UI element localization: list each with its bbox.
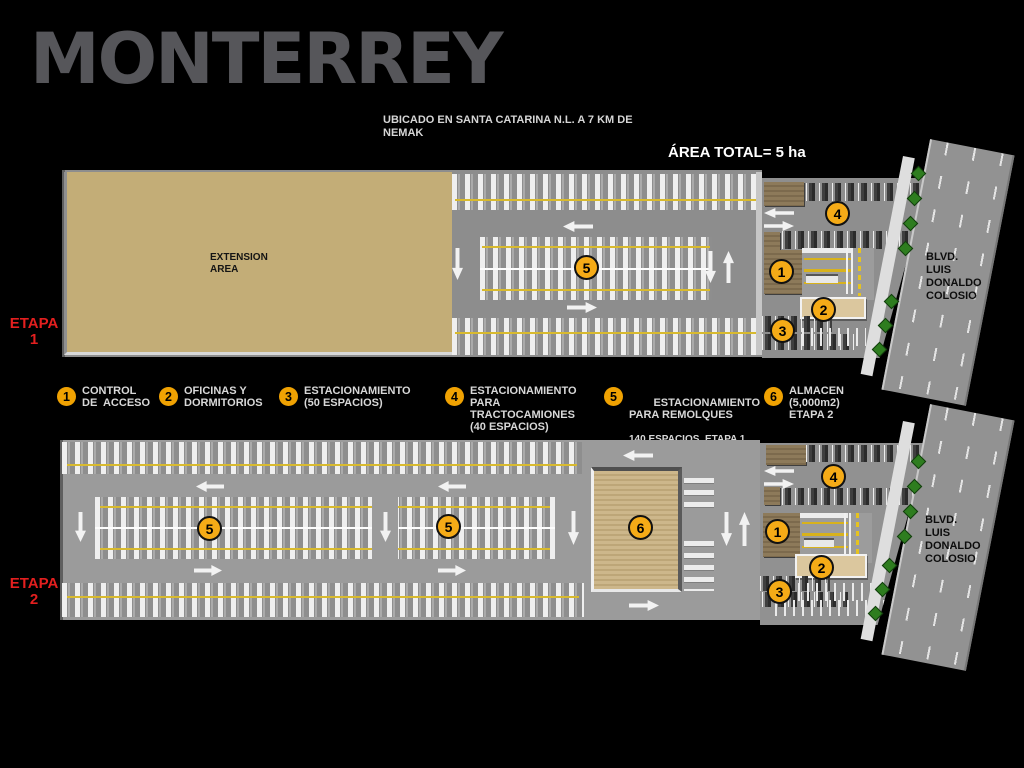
legend-marker-2: 2 [159,387,178,406]
legend-text-1: CONTROL DE ACCESO [82,385,150,409]
etapa2-stage-label: ETAPA 2 [6,576,62,608]
trailer-row [62,583,584,617]
extension-area: EXTENSION AREA [64,172,452,355]
arrow-left-icon [764,208,794,218]
shed-building [766,445,806,465]
shuttle-vehicle [804,538,834,547]
curb-strip [756,172,762,355]
marker-offices: 2 [811,297,836,322]
gate-strip [800,513,848,518]
arrow-right-icon [764,221,794,231]
legend-item-6: 6 ALMACEN (5,000m2) ETAPA 2 [764,385,844,421]
crosswalk [846,248,856,294]
marker-tractor-parking: 4 [825,201,850,226]
etapa1-stage-label: ETAPA 1 [6,316,62,348]
dock-trucks [684,478,714,510]
parking-stalls [802,328,866,346]
crosswalk [844,513,854,558]
marker-car-parking: 3 [767,579,792,604]
marker-warehouse: 6 [628,515,653,540]
legend-text-6: ALMACEN (5,000m2) ETAPA 2 [789,385,844,421]
legend-text-2: OFICINAS Y DORMITORIOS [184,385,263,409]
shed-building [764,182,804,206]
marker-trailer-parking: 5 [574,255,599,280]
entrance-driveway [802,248,874,300]
legend-marker-6: 6 [764,387,783,406]
trailer-row [452,318,760,355]
boulevard-label: BLVD. LUIS DONALDO COLOSIO [926,251,1008,303]
marker-access-control: 1 [765,519,790,544]
shed-building [764,232,780,250]
trailer-row [95,497,555,559]
legend-marker-3: 3 [279,387,298,406]
parking-stalls [798,583,872,601]
legend-marker-1: 1 [57,387,76,406]
slide-canvas: MONTERREY UBICADO EN SANTA CATARINA N.L.… [0,0,1024,768]
arrow-left-icon [764,466,794,476]
legend-item-4: 4 ESTACIONAMIENTO PARA TRACTOCAMIONES (4… [445,385,577,433]
lane-marking [802,522,848,524]
legend-marker-4: 4 [445,387,464,406]
median-dashes [856,513,859,559]
gate-strip [802,248,852,253]
legend-item-1: 1 CONTROL DE ACCESO [57,385,150,409]
shuttle-vehicle [806,274,838,283]
legend-item-3: 3 ESTACIONAMIENTO (50 ESPACIOS) [279,385,411,409]
marker-trailer-parking: 5 [197,516,222,541]
marker-offices: 2 [809,555,834,580]
location-subtitle: UBICADO EN SANTA CATARINA N.L. A 7 KM DE… [383,114,633,140]
legend-marker-5: 5 [604,387,623,406]
boulevard-label: BLVD. LUIS DONALDO COLOSIO [925,514,1007,566]
trailer-row [62,442,582,474]
marker-tractor-parking: 4 [821,464,846,489]
shed-building [764,487,780,505]
area-total-label: ÁREA TOTAL= 5 ha [668,144,806,161]
extension-area-label: EXTENSION AREA [210,252,268,276]
marker-car-parking: 3 [770,318,795,343]
marker-trailer-parking: 5 [436,514,461,539]
legend-item-2: 2 OFICINAS Y DORMITORIOS [159,385,263,409]
lane-marking [804,258,852,260]
lane-marking [804,269,852,272]
lane-marking [802,533,848,536]
dock-trucks [684,541,714,591]
legend-text-3: ESTACIONAMIENTO (50 ESPACIOS) [304,385,411,409]
marker-access-control: 1 [769,259,794,284]
page-title: MONTERREY [30,24,502,94]
legend-text-4: ESTACIONAMIENTO PARA TRACTOCAMIONES (40 … [470,385,577,433]
median-dashes [858,248,861,296]
legend-text-5-main: ESTACIONAMIENTO PARA REMOLQUES [629,397,760,421]
trailer-row [452,174,760,210]
